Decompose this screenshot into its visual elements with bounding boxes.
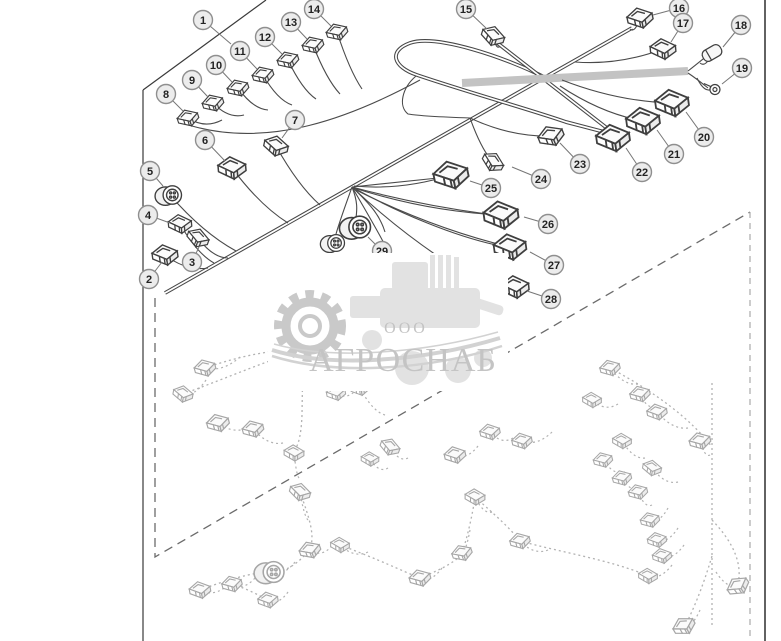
ghost-connector-g33-icon — [254, 562, 284, 584]
callout-4[interactable]: 4 — [139, 206, 158, 225]
connector-25-icon — [431, 158, 470, 192]
callout-5[interactable]: 5 — [141, 162, 160, 181]
connector-wire — [354, 188, 501, 215]
watermark: ООО АГРОСНАБ — [268, 253, 508, 391]
connector-22-icon — [595, 122, 631, 153]
wiring-harness-parts-diagram: 1234567891011121314151617181920212223242… — [0, 0, 781, 641]
connector-8-icon — [175, 107, 200, 130]
callout-26[interactable]: 26 — [539, 215, 558, 234]
ghost-connector-g28-icon — [724, 572, 752, 599]
callout-number: 27 — [548, 260, 560, 272]
callout-13[interactable]: 13 — [282, 13, 301, 32]
ghost-connector-g9-icon — [378, 436, 402, 458]
callout-number: 5 — [147, 166, 153, 178]
callout-7[interactable]: 7 — [286, 111, 305, 130]
ghost-connector-g6-icon — [288, 481, 313, 503]
callout-number: 24 — [535, 174, 548, 186]
callout-number: 17 — [677, 18, 689, 30]
ghost-connector-g26-icon — [651, 547, 672, 565]
callout-2[interactable]: 2 — [140, 270, 159, 289]
connector-wire — [470, 118, 551, 136]
callout-21[interactable]: 21 — [665, 145, 684, 164]
ghost-connector-g29-icon — [670, 613, 698, 640]
connector-10-icon — [225, 77, 250, 100]
callout-number: 26 — [542, 219, 554, 231]
connector-16-icon — [625, 5, 654, 31]
ghost-connector-g1-icon — [193, 357, 218, 379]
callout-28[interactable]: 28 — [542, 290, 561, 309]
watermark-org-prefix: ООО — [384, 320, 428, 337]
callout-number: 25 — [485, 183, 497, 195]
ghost-connector-g13-icon — [511, 431, 534, 451]
watermark-org-name: АГРОСНАБ — [309, 342, 497, 379]
callout-number: 12 — [259, 32, 271, 44]
callout-8[interactable]: 8 — [157, 85, 176, 104]
ghost-connector-g36-icon — [408, 567, 433, 589]
callout-number: 1 — [200, 15, 206, 27]
connector-wire — [276, 146, 320, 205]
callout-number: 2 — [146, 274, 152, 286]
connector-wire — [337, 32, 362, 89]
callout-3[interactable]: 3 — [183, 253, 202, 272]
ghost-harness-art — [172, 349, 752, 639]
callout-number: 19 — [736, 63, 748, 75]
ghost-connector-g16-icon — [628, 384, 651, 405]
connector-15-icon — [479, 23, 507, 48]
callout-12[interactable]: 12 — [256, 28, 275, 47]
connector-13-icon — [300, 34, 325, 57]
ghost-connector-g17-icon — [646, 402, 668, 421]
connector-17-icon — [649, 38, 676, 61]
callout-number: 7 — [292, 115, 298, 127]
ghost-connector-g38-icon — [465, 489, 485, 505]
callout-number: 22 — [636, 167, 648, 179]
callout-number: 9 — [189, 75, 195, 87]
callout-9[interactable]: 9 — [183, 71, 202, 90]
callout-number: 3 — [189, 257, 195, 269]
ghost-connector-g27-icon — [639, 568, 658, 583]
callout-15[interactable]: 15 — [457, 0, 476, 19]
callout-number: 10 — [210, 60, 222, 72]
callout-17[interactable]: 17 — [674, 14, 693, 33]
connector-7-icon — [262, 134, 290, 158]
ghost-connector-g37-icon — [450, 542, 474, 564]
ghost-connector-g18-icon — [688, 430, 713, 452]
callout-11[interactable]: 11 — [231, 42, 250, 61]
callout-number: 14 — [308, 4, 321, 16]
connector-6-icon — [217, 156, 246, 181]
connector-2-icon — [151, 243, 179, 267]
ghost-connector-g21-icon — [592, 450, 614, 470]
ghost-connector-g30-icon — [188, 580, 212, 600]
ghost-connector-g5-icon — [284, 445, 304, 461]
callout-number: 21 — [668, 149, 680, 161]
callout-number: 18 — [735, 20, 747, 32]
ghost-connector-g24-icon — [639, 510, 661, 530]
connector-14-icon — [324, 21, 349, 44]
callout-number: 4 — [145, 210, 152, 222]
ghost-connector-g35-icon — [331, 537, 350, 552]
callout-23[interactable]: 23 — [571, 155, 590, 174]
connector-18-icon — [700, 43, 723, 63]
ghost-connector-g23-icon — [627, 482, 649, 502]
callout-number: 11 — [234, 46, 246, 58]
connector-3-icon — [185, 226, 212, 250]
callout-number: 6 — [202, 135, 208, 147]
callout-20[interactable]: 20 — [695, 128, 714, 147]
callout-number: 8 — [163, 89, 169, 101]
ghost-connector-g10-icon — [361, 452, 379, 466]
connector-23-icon — [535, 122, 566, 151]
callout-number: 15 — [460, 4, 472, 16]
connector-r1-icon — [339, 216, 370, 239]
callout-22[interactable]: 22 — [633, 163, 652, 182]
ghost-connector-g3-icon — [205, 411, 231, 434]
connector-20-icon — [654, 87, 690, 118]
callout-19[interactable]: 19 — [733, 59, 752, 78]
connector-5-icon — [155, 186, 181, 206]
ghost-connector-g19-icon — [613, 433, 632, 448]
ghost-connector-g20-icon — [641, 459, 662, 477]
ghost-connector-g11-icon — [443, 444, 467, 465]
ghost-connector-g31-icon — [220, 574, 243, 595]
connector-wire — [232, 168, 288, 223]
callout-18[interactable]: 18 — [732, 16, 751, 35]
connector-21-icon — [625, 105, 661, 136]
connector-26-icon — [482, 199, 520, 231]
connector-24-icon — [479, 149, 507, 175]
callout-1[interactable]: 1 — [194, 11, 213, 30]
ghost-connector-g32-icon — [257, 590, 279, 609]
ghost-connector-g14-icon — [598, 358, 621, 379]
callout-27[interactable]: 27 — [545, 256, 564, 275]
callout-number: 28 — [545, 294, 557, 306]
ghost-connector-g34-icon — [297, 538, 322, 561]
callout-10[interactable]: 10 — [207, 56, 226, 75]
callout-25[interactable]: 25 — [482, 179, 501, 198]
connector-11-icon — [250, 64, 275, 87]
connector-r2-icon — [320, 235, 344, 253]
callout-6[interactable]: 6 — [196, 131, 215, 150]
callout-24[interactable]: 24 — [532, 170, 551, 189]
connector-12-icon — [275, 49, 300, 72]
callout-number: 20 — [698, 132, 710, 144]
ghost-connector-g25-icon — [646, 531, 667, 549]
callout-number: 23 — [574, 159, 586, 171]
ghost-connector-g2-icon — [172, 384, 194, 403]
ghost-connector-g4-icon — [241, 418, 266, 440]
callout-number: 13 — [285, 17, 297, 29]
callout-14[interactable]: 14 — [305, 0, 324, 19]
